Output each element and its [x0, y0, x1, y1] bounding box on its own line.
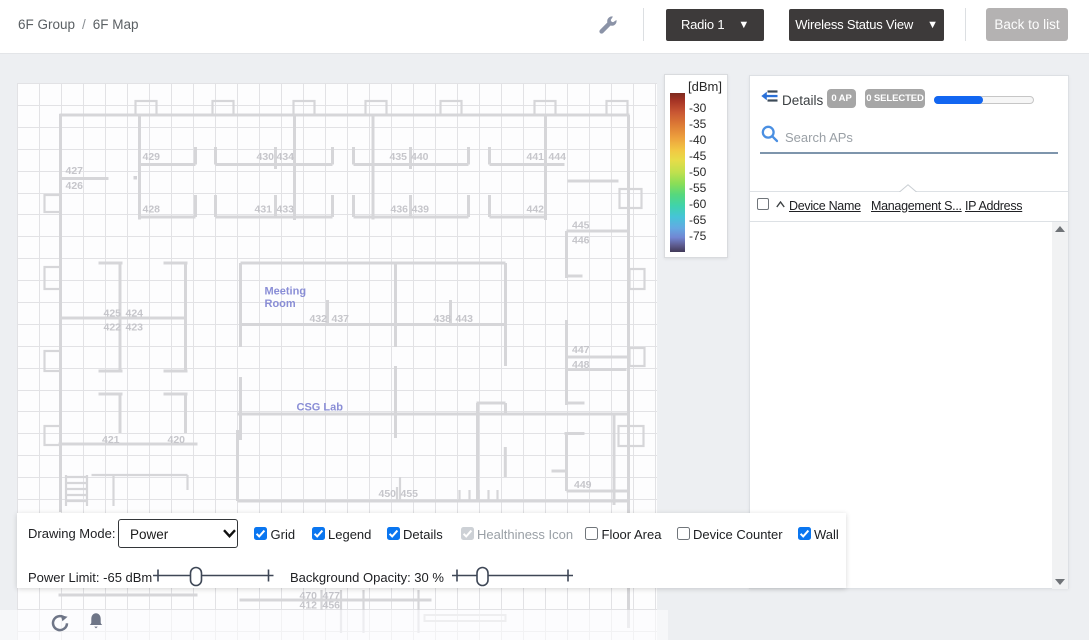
svg-text:442: 442 — [527, 204, 545, 216]
svg-text:427: 427 — [66, 165, 84, 177]
svg-text:450: 450 — [379, 488, 397, 500]
svg-text:446: 446 — [572, 235, 590, 247]
svg-text:429: 429 — [143, 151, 161, 163]
svg-text:433: 433 — [277, 204, 295, 216]
svg-text:447: 447 — [572, 344, 590, 356]
svg-text:436: 436 — [391, 204, 409, 216]
svg-text:422: 422 — [104, 322, 122, 334]
svg-text:Room: Room — [265, 298, 296, 310]
svg-text:428: 428 — [143, 204, 161, 216]
svg-text:425: 425 — [104, 308, 122, 320]
svg-text:449: 449 — [574, 479, 592, 491]
svg-text:426: 426 — [66, 180, 84, 192]
svg-text:448: 448 — [572, 359, 590, 371]
svg-text:443: 443 — [456, 313, 474, 325]
svg-text:455: 455 — [401, 488, 419, 500]
svg-text:445: 445 — [572, 220, 590, 232]
svg-text:434: 434 — [277, 151, 295, 163]
svg-text:420: 420 — [168, 434, 186, 446]
svg-text:444: 444 — [549, 151, 567, 163]
svg-text:437: 437 — [332, 313, 350, 325]
svg-text:421: 421 — [102, 434, 120, 446]
svg-text:438: 438 — [434, 313, 452, 325]
svg-text:CSG Lab: CSG Lab — [297, 402, 344, 414]
svg-text:439: 439 — [412, 204, 430, 216]
svg-text:430: 430 — [257, 151, 275, 163]
svg-text:431: 431 — [255, 204, 273, 216]
svg-text:432: 432 — [310, 313, 328, 325]
svg-text:Meeting: Meeting — [265, 286, 307, 298]
svg-text:441: 441 — [527, 151, 545, 163]
svg-text:423: 423 — [126, 322, 144, 334]
svg-text:440: 440 — [411, 151, 429, 163]
svg-text:424: 424 — [126, 308, 144, 320]
svg-text:435: 435 — [390, 151, 408, 163]
